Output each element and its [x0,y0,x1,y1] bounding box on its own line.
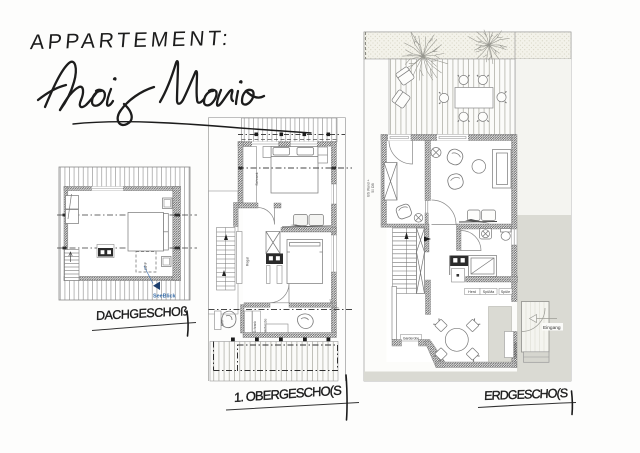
svg-text:Garderobe: Garderobe [403,336,419,340]
svg-text:SeeBlick: SeeBlick [153,294,175,300]
svg-text:Schrank: Schrank [255,172,259,185]
svg-text:Spüle: Spüle [501,290,510,294]
svg-text:Garderobe: Garderobe [514,342,518,358]
svg-text:APPARTEMENT:: APPARTEMENT: [29,27,231,54]
svg-text:Schrank: Schrank [253,321,257,333]
svg-text:Herd: Herd [468,290,476,294]
svg-text:SpüMa: SpüMa [483,290,494,294]
svg-text:ERDGESCHO(S: ERDGESCHO(S [484,386,569,403]
svg-text:Regal: Regal [246,257,250,266]
svg-text:50 DB: 50 DB [371,183,375,193]
svg-text:Eingang: Eingang [543,325,561,331]
